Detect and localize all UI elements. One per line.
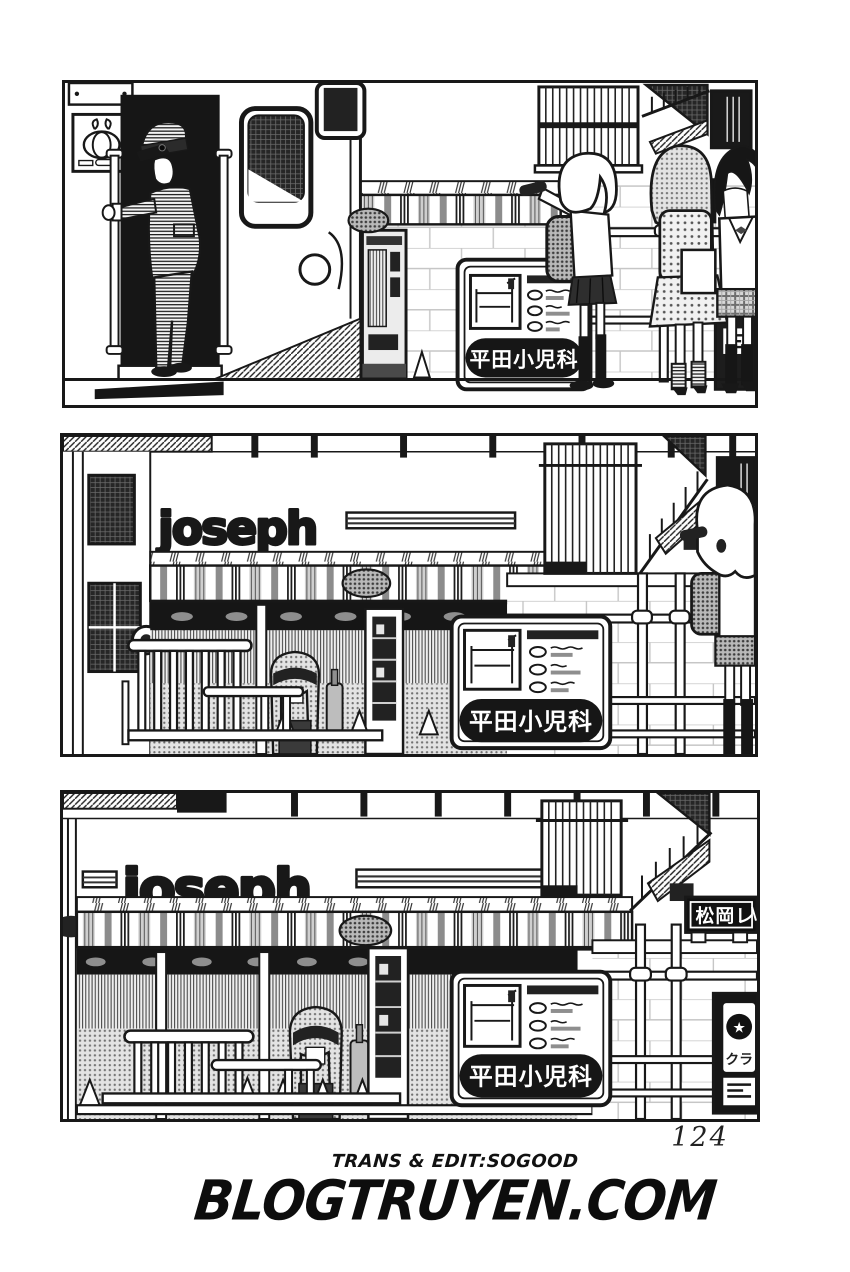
barred-window <box>536 801 628 895</box>
star-icon: ★ <box>732 1020 745 1037</box>
bus-front-window <box>317 83 365 138</box>
pediatrics-sign-text: 平田小児科 <box>469 1063 593 1091</box>
bus <box>65 83 388 399</box>
star-sign: ★ クラ <box>713 993 757 1113</box>
pediatrics-signboard: 平田小児科 <box>452 617 611 749</box>
panel-joseph-shop-2: joseph <box>60 790 760 1122</box>
site-watermark: BLOGTRUYEN.COM <box>187 1170 724 1234</box>
bench-rail <box>128 730 382 740</box>
bus-window <box>241 109 310 227</box>
vending-machine <box>362 230 406 377</box>
manga-page: 平田小児科 <box>0 0 850 1272</box>
panel-bus-stop-art: 平田小児科 <box>65 83 755 405</box>
pediatrics-signboard: 平田小児科 <box>452 972 611 1106</box>
speaker-oval <box>340 916 392 945</box>
speaker-oval <box>343 569 391 596</box>
display-window <box>470 275 520 328</box>
pediatrics-sign-text: 平田小児科 <box>470 348 579 372</box>
panel-joseph-shop-2-art: joseph <box>63 793 757 1119</box>
panel-joseph-shop-1: joseph <box>60 433 758 757</box>
shop-awning <box>150 552 545 603</box>
panel-joseph-shop-1-art: joseph <box>63 436 755 754</box>
star-sign-text: クラ <box>725 1052 753 1068</box>
bus-mirror <box>349 209 389 233</box>
display-window <box>465 630 521 689</box>
matsuoka-sign-text: 松岡レ <box>696 906 755 928</box>
barred-window <box>539 444 642 574</box>
pediatrics-sign-text: 平田小児科 <box>469 708 593 736</box>
bus-light <box>300 255 330 284</box>
shop-awning <box>63 897 632 949</box>
joseph-logo: joseph <box>156 502 316 555</box>
page-number: 124 <box>660 1122 740 1153</box>
small-dark-window <box>711 91 751 148</box>
bench-rail <box>103 1093 400 1103</box>
display-window <box>465 985 521 1046</box>
sign-bar <box>347 513 516 529</box>
shopping-bag <box>682 250 716 293</box>
panel-bus-stop: 平田小児科 <box>62 80 758 408</box>
